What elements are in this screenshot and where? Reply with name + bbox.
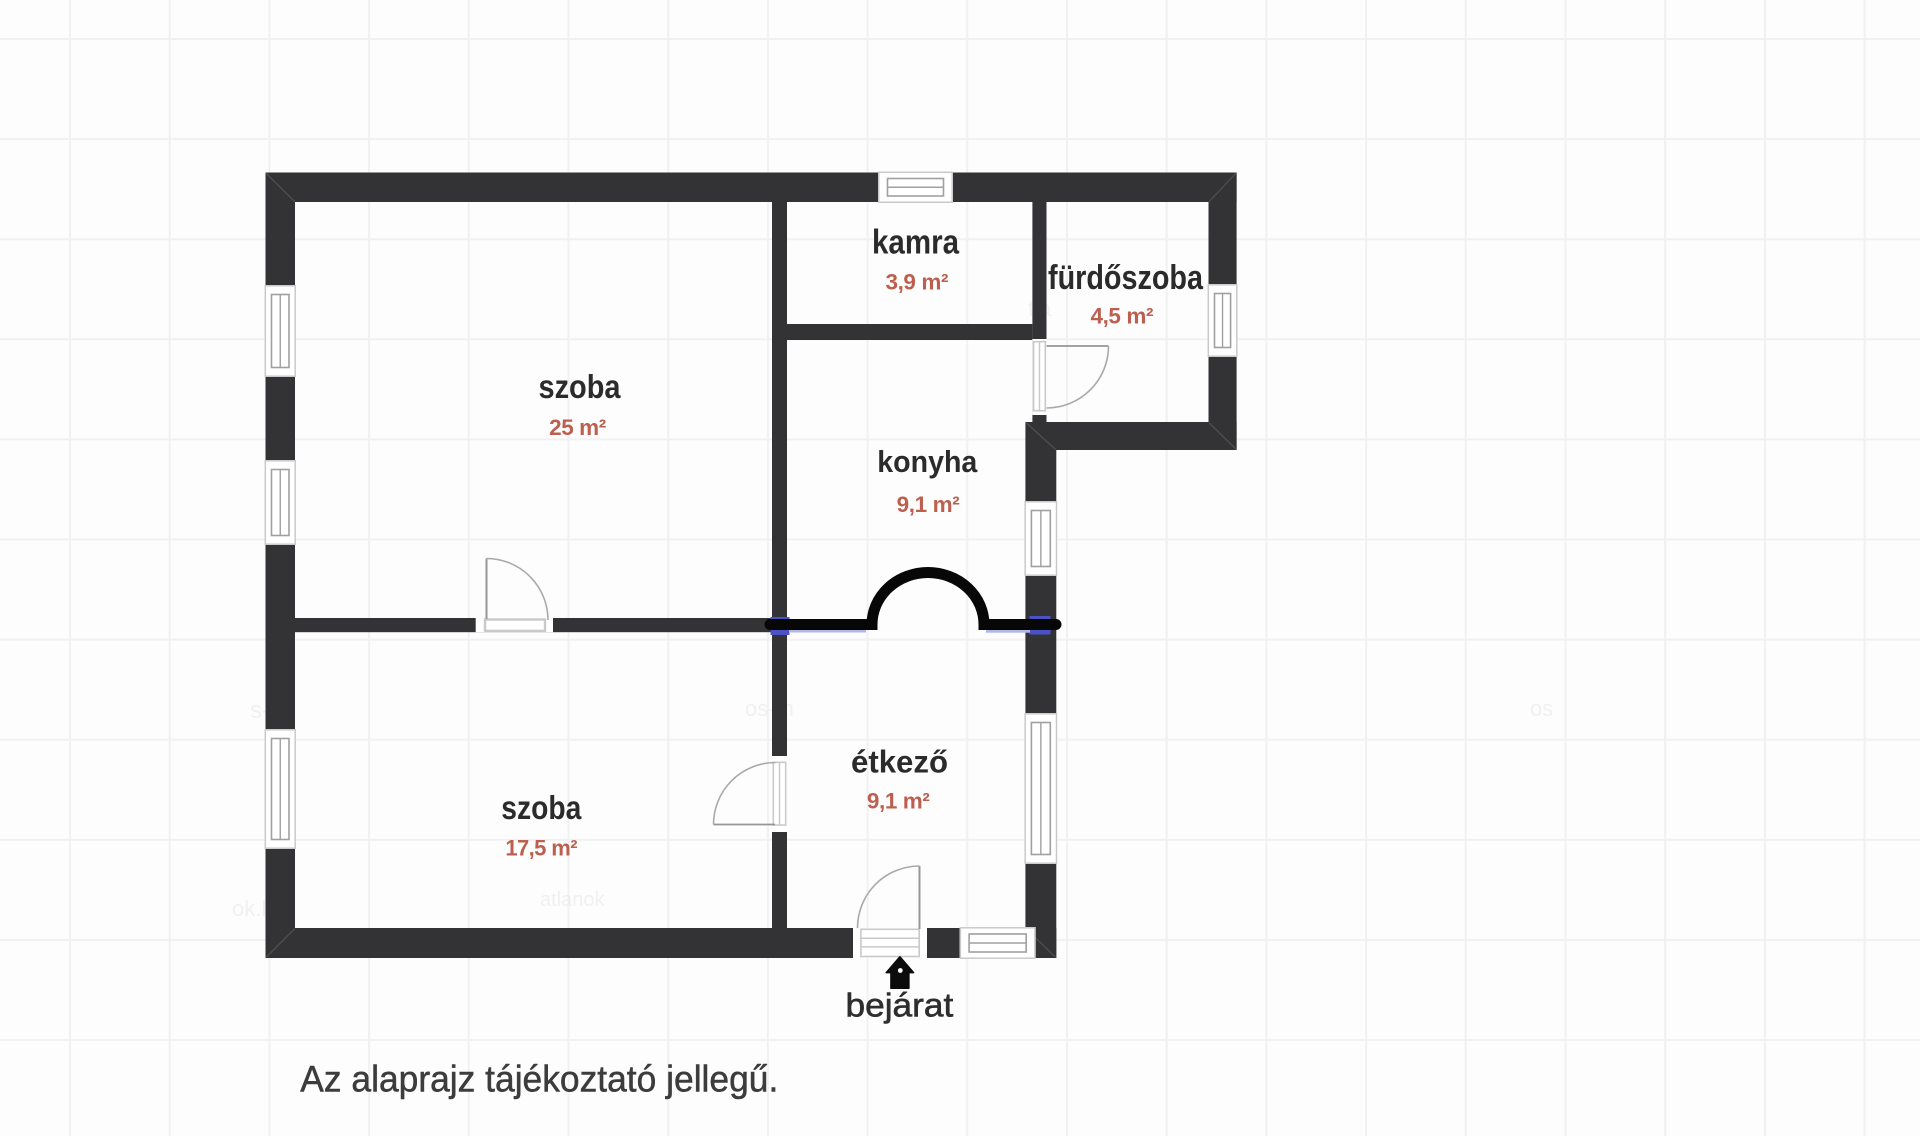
svg-text:kamra: kamra: [872, 224, 960, 262]
svg-text:Az alaprajz tájékoztató jelleg: Az alaprajz tájékoztató jellegű.: [300, 1058, 778, 1100]
svg-text:atlanok: atlanok: [540, 889, 605, 911]
svg-text:szoba: szoba: [539, 369, 621, 406]
svg-text:bejárat: bejárat: [846, 988, 955, 1025]
svg-text:konyha: konyha: [877, 445, 978, 479]
svg-text:os: os: [1530, 696, 1553, 721]
svg-text:9,1 m²: 9,1 m²: [897, 492, 961, 517]
svg-text:fürdőszoba: fürdőszoba: [1048, 259, 1204, 297]
svg-text:4,5 m²: 4,5 m²: [1090, 304, 1154, 329]
svg-text:3,9 m²: 3,9 m²: [885, 270, 949, 295]
svg-text:9,1 m²: 9,1 m²: [867, 789, 931, 814]
svg-text:szoba: szoba: [501, 789, 582, 826]
svg-text:25 m²: 25 m²: [549, 415, 607, 440]
svg-text:17,5 m²: 17,5 m²: [505, 836, 577, 861]
svg-text:étkező: étkező: [851, 744, 948, 780]
